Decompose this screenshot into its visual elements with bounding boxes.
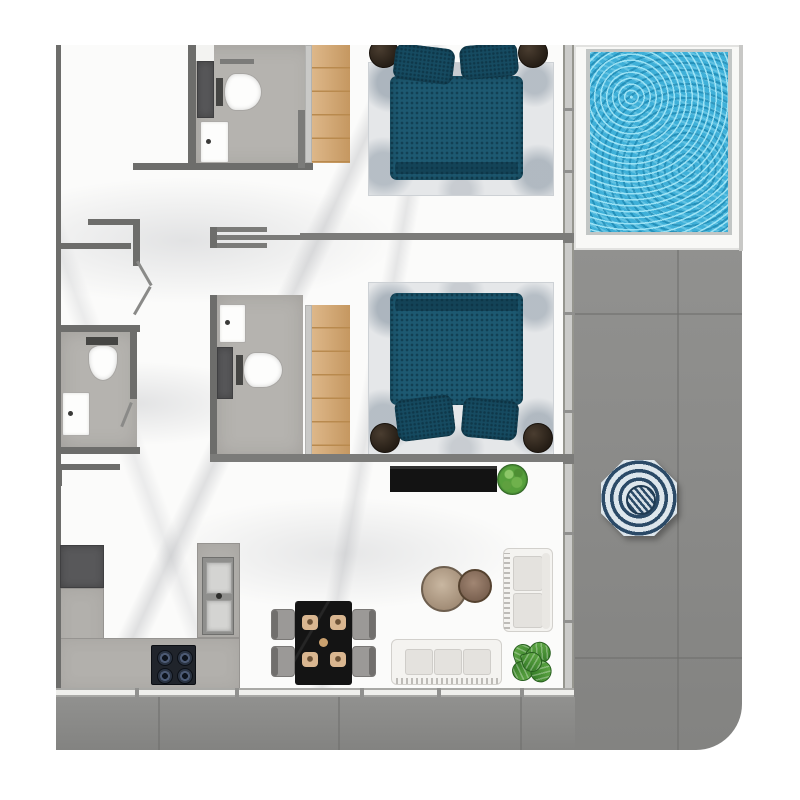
door-frame-post [437, 688, 441, 697]
deck-tile-joint [677, 250, 679, 750]
faucet-icon [68, 411, 73, 416]
bedroom1-pillow-left [392, 42, 456, 85]
kitchen-sink-unit [202, 557, 234, 635]
monstera-plant [511, 641, 552, 682]
place-setting [302, 615, 318, 630]
bathroom-vanity-unit [197, 61, 214, 118]
closet-sliding-track [217, 227, 267, 232]
door-frame-post [235, 688, 239, 697]
sofa-back [542, 553, 550, 629]
sofa-vertical [503, 548, 553, 632]
door-frame-post [360, 688, 364, 697]
bedroom2-bed-duvet [390, 293, 523, 405]
sofa-horizontal [391, 639, 502, 685]
dining-chair [271, 646, 295, 677]
bathroom-middle-left-wall [210, 295, 217, 456]
toilet-tank [86, 337, 118, 345]
bathroom-sink [219, 304, 246, 343]
bedroom2-pillow-left [394, 394, 457, 443]
chair-back [272, 647, 278, 676]
deck-tile-joint [158, 697, 160, 750]
shower-tray [196, 45, 214, 61]
hall-wall [88, 219, 138, 225]
parasol-umbrella [601, 460, 677, 536]
page-margin-right [743, 0, 800, 800]
rear-sliding-door-wall [56, 688, 574, 697]
toilet-tank [236, 355, 243, 385]
page-margin-bottom [0, 750, 800, 800]
potted-plant [497, 464, 528, 495]
floor-plan-canvas [0, 0, 800, 800]
page-margin-left [0, 0, 56, 800]
window-mullion [563, 410, 574, 413]
duvet-fold [395, 162, 517, 174]
kitchen-counter-bottom [58, 638, 240, 690]
sofa-fringe [396, 678, 499, 684]
wardrobe-frame [305, 45, 312, 163]
dining-chair [352, 609, 376, 640]
sofa-cushion [405, 649, 433, 675]
door-frame-post [520, 688, 524, 697]
umbrella-center-cap [626, 485, 656, 515]
swimming-pool-water [590, 52, 728, 232]
toilet-tank [216, 78, 223, 106]
stove-burner [177, 668, 193, 684]
hall-wall-stub [56, 470, 62, 486]
hall-wall [133, 219, 140, 266]
sofa-cushion [434, 649, 462, 675]
coffee-table-small [458, 569, 492, 603]
place-setting [330, 652, 346, 667]
hall-wall-stub [56, 464, 120, 470]
closet-wall-cap [210, 227, 217, 248]
bathroom-left-top-wall [56, 325, 140, 332]
sofa-cushion [513, 593, 543, 628]
hall-wall [60, 243, 131, 249]
bathroom-top-left-wall [188, 45, 196, 170]
deck-tile-joint [520, 697, 522, 750]
right-window-wall [563, 45, 574, 691]
stove-burner [157, 650, 173, 666]
place-setting [330, 615, 346, 630]
chair-back [369, 647, 375, 676]
door-frame-post [135, 688, 139, 697]
wall-junction [563, 233, 574, 243]
dining-chair [352, 646, 376, 677]
closet-sliding-track [217, 235, 313, 240]
sofa-fringe [504, 553, 510, 629]
window-mullion [563, 532, 574, 535]
nightstand [523, 423, 553, 453]
sofa-cushion [513, 556, 543, 591]
faucet-icon [225, 320, 230, 325]
toilet [224, 73, 262, 111]
bedroom1-bed-duvet [390, 76, 523, 180]
bedroom2-pillow-right [460, 397, 519, 442]
chair-back [369, 610, 375, 639]
deck-tile-joint [575, 657, 742, 659]
bedroom1-pillow-right [459, 42, 520, 81]
refrigerator [60, 545, 104, 588]
bathroom-top-bottom-wall [133, 163, 313, 170]
wardrobe-top [312, 45, 350, 163]
left-exterior-wall [56, 45, 61, 691]
stove-burner [157, 668, 173, 684]
dining-chair [271, 609, 295, 640]
faucet-icon [206, 139, 211, 144]
toilet [243, 352, 283, 388]
window-mullion [563, 108, 574, 111]
closet-sliding-track [217, 243, 267, 248]
page-margin-top [0, 0, 800, 45]
deck-tile-joint [338, 697, 340, 750]
partition-wall [298, 110, 305, 168]
bedroom1-bottom-wall [300, 233, 573, 240]
shower-partition [220, 59, 254, 64]
tv-console [390, 466, 497, 492]
cooktop [151, 645, 196, 685]
dining-table [295, 601, 352, 685]
wall-junction [563, 454, 574, 464]
deck-bottom [56, 697, 575, 750]
wardrobe-frame [305, 305, 312, 455]
nightstand [370, 423, 400, 453]
bathroom-sink [200, 121, 229, 163]
duvet-fold [395, 299, 517, 311]
bedroom2-bottom-wall [210, 454, 573, 462]
window-mullion [563, 312, 574, 315]
bathroom-left-bottom-wall [56, 447, 140, 454]
bathroom-left-right-wall [130, 325, 137, 399]
table-centerpiece [319, 638, 328, 647]
sofa-cushion [463, 649, 491, 675]
sink-basin [206, 562, 232, 594]
bathroom-vanity-unit [217, 347, 233, 399]
faucet-icon [216, 593, 222, 599]
deck-tile-joint [575, 313, 742, 315]
chair-back [272, 610, 278, 639]
place-setting [302, 652, 318, 667]
window-mullion [563, 620, 574, 623]
window-mullion [563, 170, 574, 173]
stove-burner [177, 650, 193, 666]
bathroom-sink [62, 392, 90, 436]
wardrobe-middle [312, 305, 350, 455]
sink-basin [206, 600, 232, 632]
